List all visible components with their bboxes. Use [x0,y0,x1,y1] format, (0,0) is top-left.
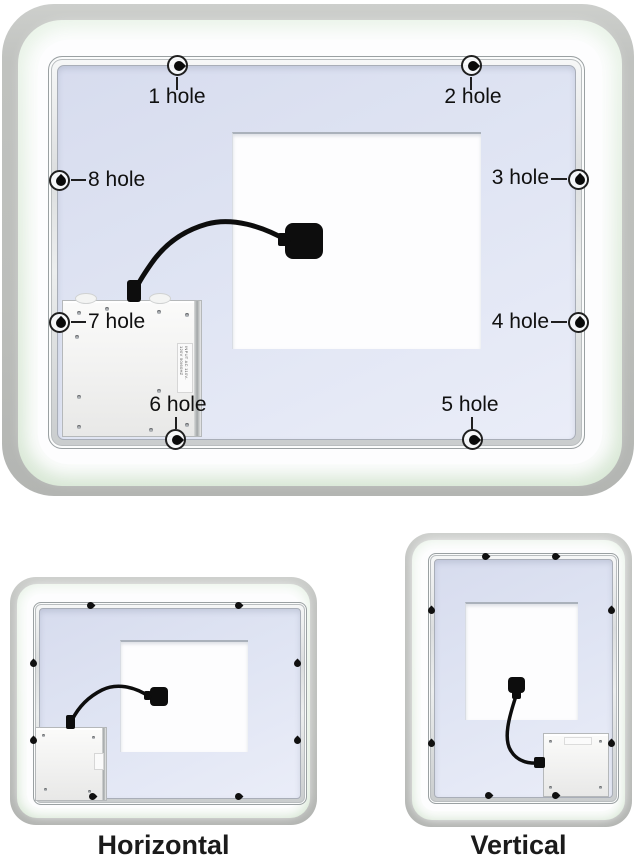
horizontal-caption: Horizontal [10,830,317,861]
keyhole-icon [172,59,186,73]
screw [77,425,81,429]
horizontal-orientation-view [10,577,317,825]
hole-marker-7 [49,312,70,333]
screw [157,310,161,314]
hole-label-4: 4 hole [492,310,549,334]
leader-line [471,417,473,429]
center-light-panel [120,640,248,752]
keyhole-icon [573,173,587,187]
vertical-orientation-view [405,533,632,827]
screw [185,423,189,427]
leader-line [71,321,86,323]
hole-label-3: 3 hole [492,166,549,190]
screw [599,740,602,743]
hole-label-6: 6 hole [149,393,206,417]
keyhole-icon [466,59,480,73]
leader-line [551,178,567,180]
keyhole-icon [54,174,68,188]
vertical-caption: Vertical [405,830,632,861]
driver-rating-text: INPUT AC 110V-120V 50/60HZ [178,344,190,392]
hole-marker-2 [461,55,482,76]
screw [599,786,602,789]
hole-marker-6 [165,429,186,450]
hole-label-2: 2 hole [444,85,501,109]
cable-clip [149,293,171,304]
hole-marker-8 [49,170,70,191]
hole-marker-4 [568,312,589,333]
junction-box [508,677,525,693]
leader-line [71,179,86,181]
screw [42,734,45,737]
hole-label-8: 8 hole [88,168,145,192]
hole-label-7: 7 hole [88,310,145,334]
screw [77,395,81,399]
keyhole-icon [573,316,587,330]
leader-line [551,321,567,323]
screw [549,786,552,789]
screw [44,788,47,791]
mirror-mounting-diagram: INPUT AC 110V-120V 50/60HZ 1 hole 2 hole [0,0,640,861]
driver-rating-sticker: INPUT AC 110V-120V 50/60HZ [177,343,193,393]
led-driver-box [543,733,609,797]
screw [75,335,79,339]
center-light-panel [232,132,481,349]
screw [185,313,189,317]
junction-box [150,687,168,706]
hole-marker-1 [167,55,188,76]
screw [77,311,81,315]
keyhole-icon [54,316,68,330]
center-light-panel [465,602,578,720]
junction-box [285,223,323,259]
hole-marker-3 [568,169,589,190]
led-driver-box [35,727,107,801]
hole-label-1: 1 hole [148,85,205,109]
screw [149,428,153,432]
driver-rating-sticker [94,753,104,770]
mirror-back-main-view: INPUT AC 110V-120V 50/60HZ 1 hole 2 hole [0,0,640,530]
leader-line [175,417,177,429]
cable-clip [75,293,97,304]
screw [549,740,552,743]
keyhole-icon [170,433,184,447]
keyhole-icon [467,433,481,447]
hole-marker-5 [462,429,483,450]
screw [92,736,95,739]
hole-label-5: 5 hole [441,393,498,417]
driver-rating-sticker [564,737,592,745]
